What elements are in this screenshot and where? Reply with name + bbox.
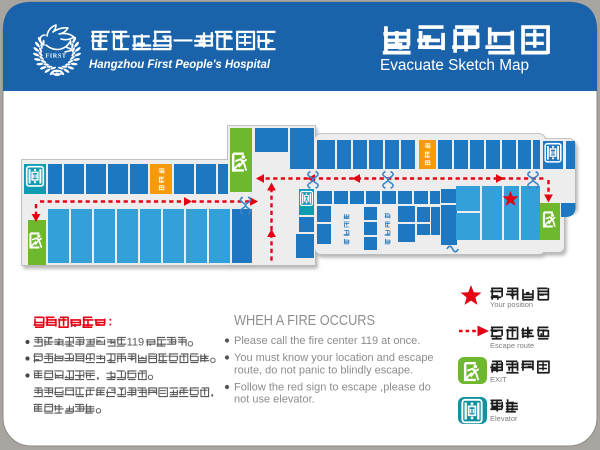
svg-text:not use elevator.: not use elevator. bbox=[234, 394, 315, 406]
svg-text:You must know your location an: You must know your location and escape bbox=[234, 352, 434, 364]
svg-text:Please call the fire center 11: Please call the fire center 119 at once. bbox=[234, 335, 420, 347]
svg-text:Your position: Your position bbox=[490, 300, 533, 309]
svg-text:FIRST: FIRST bbox=[45, 53, 66, 60]
svg-text:WHEH A FIRE OCCURS: WHEH A FIRE OCCURS bbox=[234, 312, 375, 329]
svg-text:route, do not panic to blindly: route, do not panic to blindly escape. bbox=[234, 365, 413, 377]
svg-text:Follow the red sign to escape: Follow the red sign to escape ,please do bbox=[234, 382, 431, 394]
svg-text:Escape route: Escape route bbox=[490, 341, 534, 350]
svg-text:Hangzhou First People's Hospit: Hangzhou First People's Hospital bbox=[89, 57, 271, 71]
svg-text:Elevator: Elevator bbox=[490, 414, 518, 423]
svg-text:Evacuate Sketch Map: Evacuate Sketch Map bbox=[380, 57, 529, 74]
svg-text:119: 119 bbox=[127, 337, 145, 349]
svg-text:EXIT: EXIT bbox=[490, 375, 507, 384]
